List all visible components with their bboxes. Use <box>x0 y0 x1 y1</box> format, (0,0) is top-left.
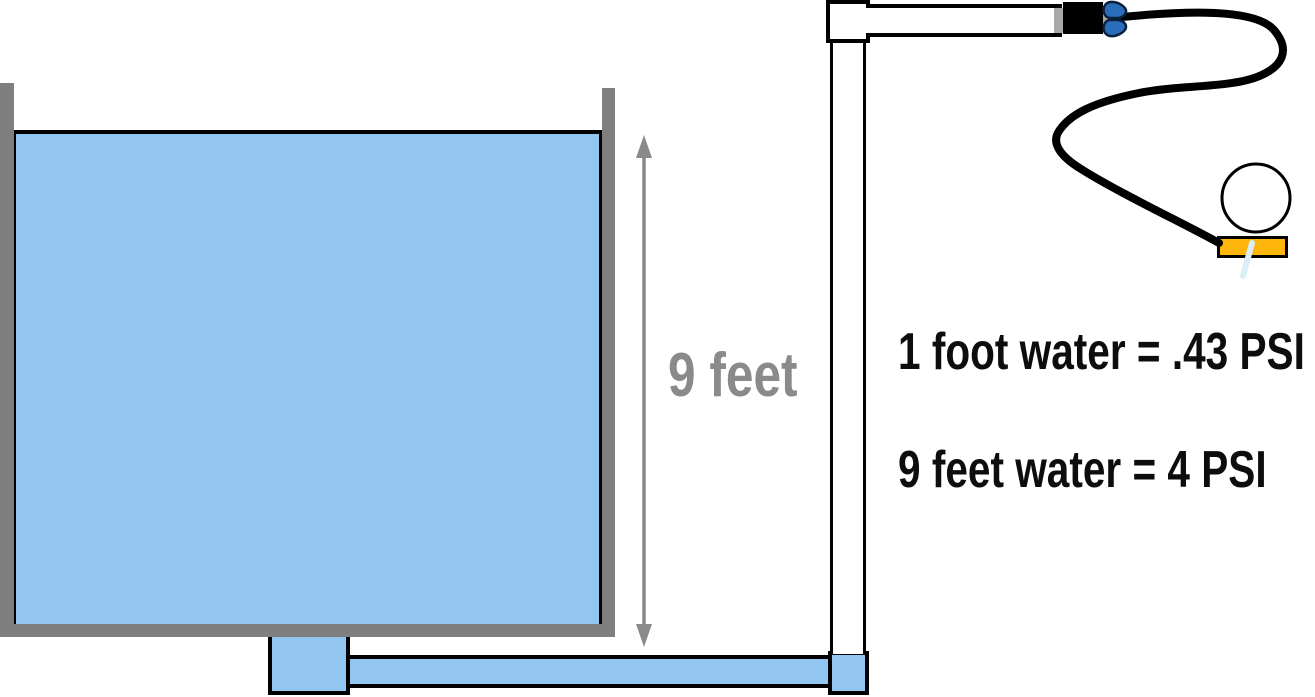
conversion-note-1: 1 foot water = .43 PSI <box>898 326 1305 378</box>
riser-pipe <box>830 40 866 654</box>
height-arrow-head-bottom <box>636 624 652 647</box>
tank-right-wall <box>602 88 615 637</box>
valve-collar-left <box>1054 8 1063 33</box>
tank-outlet <box>268 637 350 695</box>
bottom-elbow <box>828 651 869 695</box>
tank-height-label: 9 feet <box>668 345 798 407</box>
diagram-canvas: 9 feet 1 foot water = .43 PSI 9 feet wat… <box>0 0 1315 697</box>
height-arrow <box>636 135 652 647</box>
nozzle <box>1217 236 1288 258</box>
tank-water <box>13 130 602 624</box>
hose <box>1056 13 1283 243</box>
bottom-pipe <box>346 655 832 688</box>
top-elbow <box>826 0 870 43</box>
conversion-note-2: 9 feet water = 4 PSI <box>898 444 1267 496</box>
height-arrow-head-top <box>636 135 652 158</box>
pressure-gauge-icon <box>1222 164 1290 232</box>
tank-bottom-wall <box>0 624 615 637</box>
valve-collar-right <box>1103 10 1111 32</box>
tank-left-wall <box>0 83 14 637</box>
spout-pipe <box>866 4 1062 37</box>
valve-body <box>1063 2 1103 34</box>
